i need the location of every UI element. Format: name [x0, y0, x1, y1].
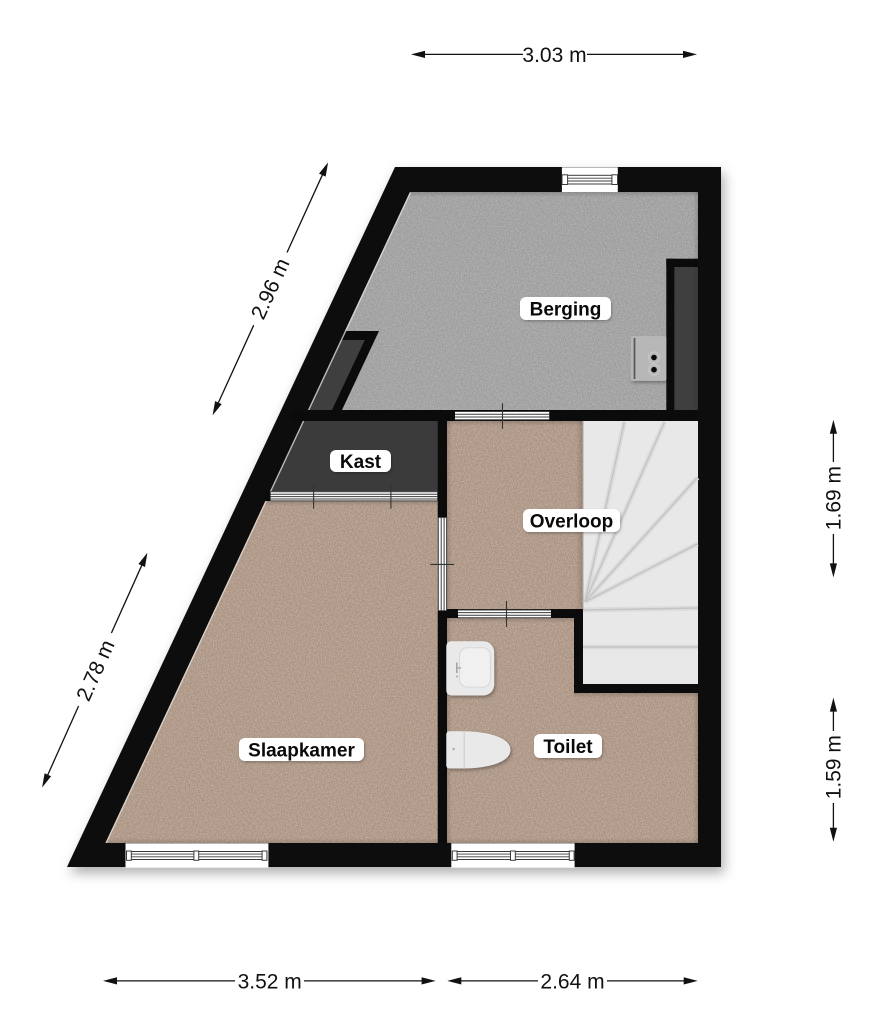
svg-text:Kast: Kast	[340, 452, 382, 473]
svg-text:2.78 m: 2.78 m	[72, 637, 119, 705]
svg-text:3.52 m: 3.52 m	[238, 971, 302, 994]
svg-text:Berging: Berging	[530, 299, 602, 320]
svg-text:2.96 m: 2.96 m	[247, 255, 295, 323]
svg-text:3.03 m: 3.03 m	[522, 44, 586, 67]
svg-text:1.59 m: 1.59 m	[822, 735, 845, 799]
svg-text:Slaapkamer: Slaapkamer	[248, 740, 355, 761]
svg-text:Overloop: Overloop	[530, 511, 613, 532]
svg-text:Toilet: Toilet	[543, 737, 593, 758]
svg-text:1.69 m: 1.69 m	[822, 466, 845, 530]
svg-text:2.64 m: 2.64 m	[540, 971, 604, 994]
